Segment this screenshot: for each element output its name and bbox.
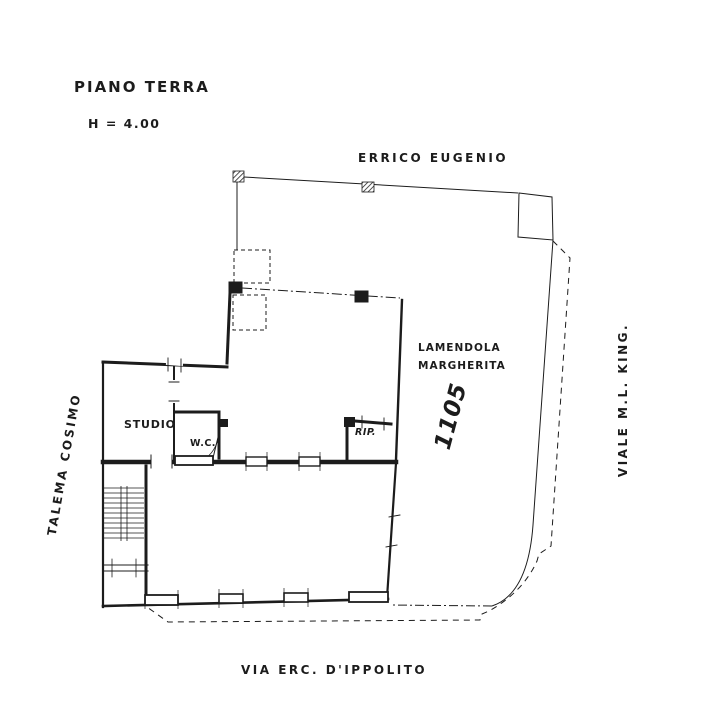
- party-wall-dashdot: [242, 288, 400, 298]
- wall-right-upper: [396, 300, 402, 460]
- height-note: H = 4.00: [88, 116, 160, 131]
- boundary-top-line: [244, 177, 518, 193]
- window: [246, 457, 267, 466]
- wall-rip-top: [355, 421, 391, 424]
- corner-marker-mid: [355, 291, 368, 302]
- windows: [145, 452, 388, 609]
- wall-upper-vertical: [227, 293, 230, 363]
- room-label-studio: STUDIO: [124, 418, 176, 431]
- owner-name-line1: LAMENDOLA: [418, 342, 501, 354]
- room-label-wc: W.C.: [190, 438, 216, 449]
- labels: PIANO TERRA H = 4.00 ERRICO EUGENIO VIAL…: [45, 78, 630, 677]
- neighbor-top-label: ERRICO EUGENIO: [358, 151, 508, 165]
- wall-right-lower: [387, 463, 396, 598]
- window: [349, 592, 388, 602]
- staircase: [104, 486, 144, 541]
- hatch-marker-mid: [362, 182, 374, 192]
- boundary-bottom-inner: [390, 605, 492, 606]
- owner-name-line2: MARGHERITA: [418, 360, 506, 372]
- window: [284, 593, 308, 602]
- street-bottom-label: VIA ERC. D'IPPOLITO: [241, 663, 427, 677]
- corner-marker-left: [229, 282, 242, 293]
- scanned-floor-plan-page: PIANO TERRA H = 4.00 ERRICO EUGENIO VIAL…: [0, 0, 720, 720]
- window: [299, 457, 320, 466]
- window: [175, 456, 213, 465]
- parcel-number: 1105: [430, 380, 473, 452]
- building-walls: [103, 293, 402, 607]
- street-right-label: VIALE M.L. KING.: [616, 323, 630, 477]
- dashed-projection-lower: [233, 295, 266, 330]
- floor-plan-drawing: PIANO TERRA H = 4.00 ERRICO EUGENIO VIAL…: [0, 0, 720, 720]
- property-boundary: [147, 171, 570, 622]
- room-label-rip: RIP.: [355, 427, 376, 438]
- dashed-projection-upper: [234, 250, 270, 283]
- plan-title: PIANO TERRA: [74, 78, 210, 96]
- wall-top-left: [103, 362, 227, 367]
- neighbor-left-label: TALEMA COSIMO: [45, 392, 84, 537]
- window: [145, 595, 178, 605]
- hatch-marker-left: [233, 171, 244, 182]
- wc-door-jamb: [218, 419, 228, 427]
- boundary-notch-square: [518, 193, 553, 240]
- window: [219, 594, 243, 603]
